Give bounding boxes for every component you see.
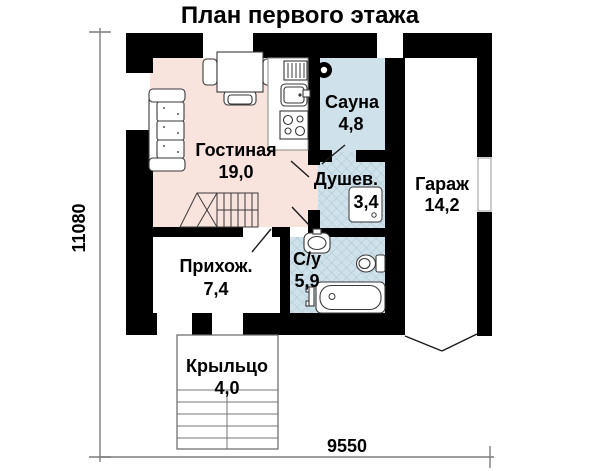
wall-segment <box>477 212 492 336</box>
room-label-sauna: Сауна <box>325 92 380 112</box>
wall-segment <box>477 58 492 157</box>
dimension-value-vertical: 11080 <box>69 203 89 252</box>
room-area-shower: 3,4 <box>353 192 378 212</box>
kitchen-block <box>268 58 310 150</box>
room-area-bathroom: 5,9 <box>294 271 319 291</box>
wall-segment <box>280 237 290 313</box>
kitchen-sink-icon <box>281 84 310 106</box>
garage-window <box>478 158 491 211</box>
sofa-cushion <box>157 121 184 140</box>
table-top <box>217 52 263 92</box>
wall-segment <box>403 33 492 58</box>
sofa-cushion <box>157 140 184 158</box>
room-label-bathroom: С/у <box>293 249 321 269</box>
room-label-garage: Гараж <box>415 174 469 194</box>
room-area-living: 19,0 <box>218 162 253 182</box>
wall-segment <box>243 313 405 335</box>
wall-segment <box>272 227 290 237</box>
wall-segment <box>153 227 243 237</box>
sofa-icon <box>149 89 185 171</box>
wall-segment <box>356 150 385 162</box>
wall-segment <box>126 313 157 335</box>
wall-segment <box>385 58 405 313</box>
wall-segment <box>192 313 212 335</box>
wall-segment <box>253 33 377 58</box>
sauna-stove-icon <box>316 62 332 78</box>
fridge-icon <box>284 61 307 80</box>
sofa-armrest <box>149 158 185 171</box>
dimension-value-horizontal: 9550 <box>327 436 367 456</box>
toilet-icon <box>357 255 386 272</box>
garage-gate-right <box>442 334 477 351</box>
room-label-living: Гостиная <box>195 140 276 160</box>
floor-plan-drawing: План первого этажа <box>0 0 600 471</box>
wall-segment <box>126 33 203 58</box>
sofa-cushion <box>157 102 184 121</box>
room-label-porch: Крыльцо <box>186 356 268 376</box>
room-area-porch: 4,0 <box>214 378 239 398</box>
dimension-horizontal: 9550 <box>100 436 494 468</box>
garage-gate-left <box>405 336 442 351</box>
wall-segment <box>320 228 385 237</box>
room-label-hallway: Прихож. <box>179 256 252 276</box>
room-area-garage: 14,2 <box>424 195 459 215</box>
wall-segment <box>126 58 153 73</box>
room-label-shower: Душев. <box>314 169 378 189</box>
room-area-hallway: 7,4 <box>203 279 228 299</box>
stove-icon <box>280 111 308 139</box>
chair <box>203 59 217 85</box>
floor-plan-page: План первого этажа <box>0 0 600 471</box>
chair-seat <box>228 95 252 104</box>
dimension-vertical: 11080 <box>69 28 111 462</box>
page-title: План первого этажа <box>181 2 420 29</box>
hallway-door-swing <box>252 229 271 252</box>
room-area-sauna: 4,8 <box>338 114 363 134</box>
sofa-armrest <box>149 89 185 102</box>
